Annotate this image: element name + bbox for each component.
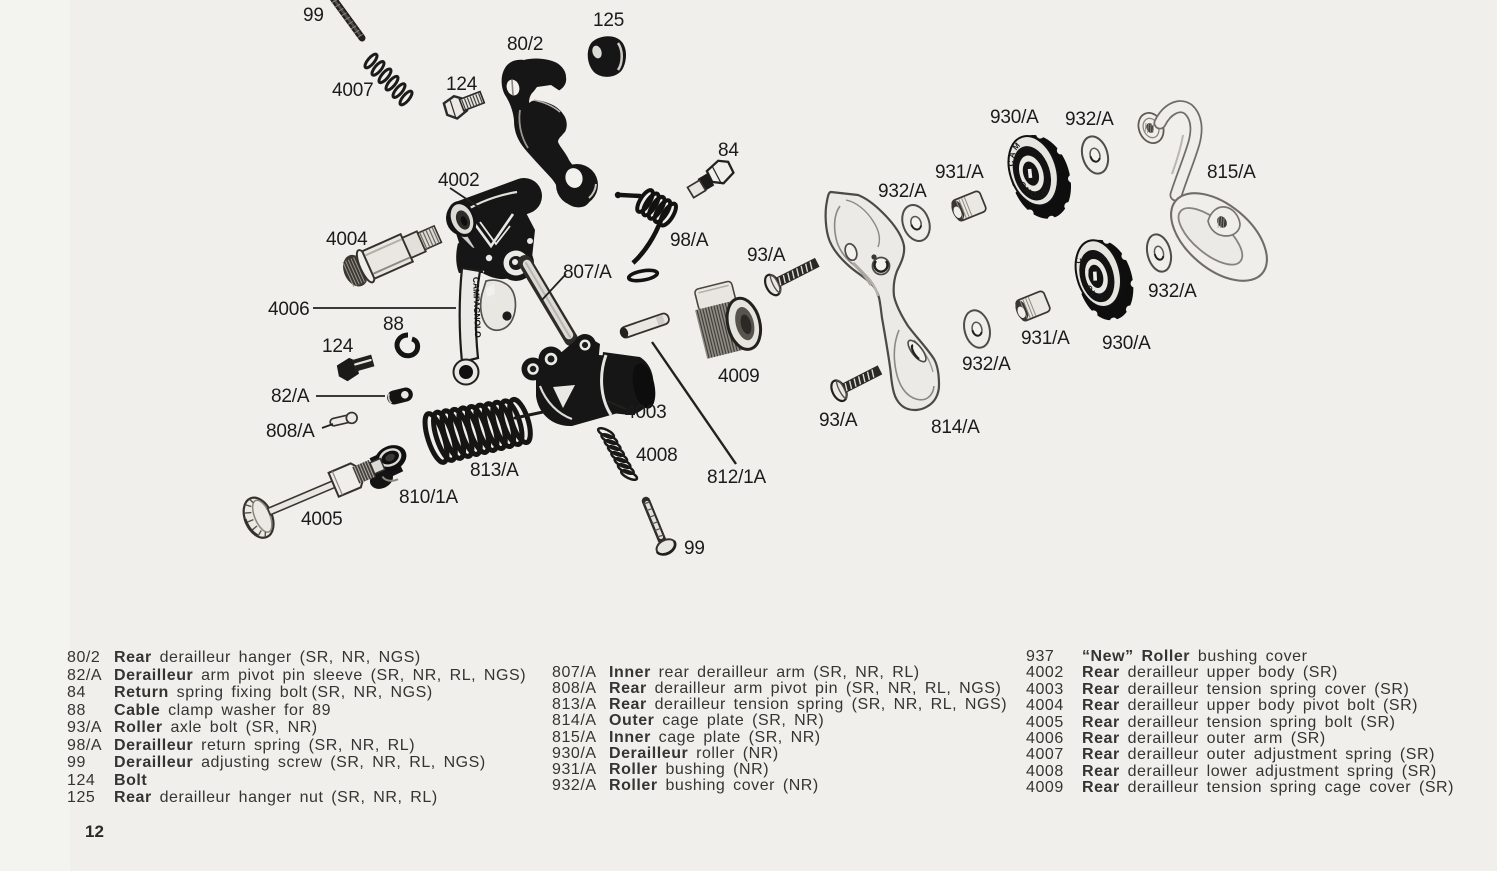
svg-text:4007: 4007 xyxy=(332,80,373,101)
svg-text:807/A: 807/A xyxy=(563,262,612,283)
svg-text:812/1A: 812/1A xyxy=(707,467,767,488)
svg-text:931/A: 931/A xyxy=(935,162,984,183)
svg-text:4004: 4004 xyxy=(326,229,368,250)
svg-text:4008: 4008 xyxy=(636,445,677,466)
svg-text:4009: 4009 xyxy=(718,366,759,387)
svg-text:80/2: 80/2 xyxy=(507,34,543,55)
svg-text:84: 84 xyxy=(718,140,739,161)
svg-text:88: 88 xyxy=(383,314,404,335)
svg-text:4002: 4002 xyxy=(438,170,479,191)
svg-text:808/A: 808/A xyxy=(266,421,315,442)
svg-text:932/A: 932/A xyxy=(962,354,1011,375)
svg-text:98/A: 98/A xyxy=(670,230,709,251)
svg-text:932/A: 932/A xyxy=(1148,281,1197,302)
svg-text:4003: 4003 xyxy=(625,402,666,423)
svg-text:124: 124 xyxy=(322,336,354,357)
svg-text:930/A: 930/A xyxy=(1102,333,1151,354)
svg-text:125: 125 xyxy=(593,10,624,31)
svg-text:124: 124 xyxy=(446,74,478,95)
svg-text:813/A: 813/A xyxy=(470,460,519,481)
svg-text:99: 99 xyxy=(684,538,705,559)
svg-text:931/A: 931/A xyxy=(1021,328,1070,349)
svg-text:932/A: 932/A xyxy=(1065,109,1114,130)
svg-text:932/A: 932/A xyxy=(878,181,927,202)
svg-text:93/A: 93/A xyxy=(747,245,786,266)
svg-text:814/A: 814/A xyxy=(931,417,980,438)
svg-text:93/A: 93/A xyxy=(819,410,858,431)
svg-text:930/A: 930/A xyxy=(990,107,1039,128)
svg-text:82/A: 82/A xyxy=(271,386,310,407)
svg-text:99: 99 xyxy=(303,5,324,26)
svg-text:815/A: 815/A xyxy=(1207,162,1256,183)
svg-text:4006: 4006 xyxy=(268,299,309,320)
svg-text:810/1A: 810/1A xyxy=(399,487,459,508)
svg-text:4005: 4005 xyxy=(301,509,342,530)
